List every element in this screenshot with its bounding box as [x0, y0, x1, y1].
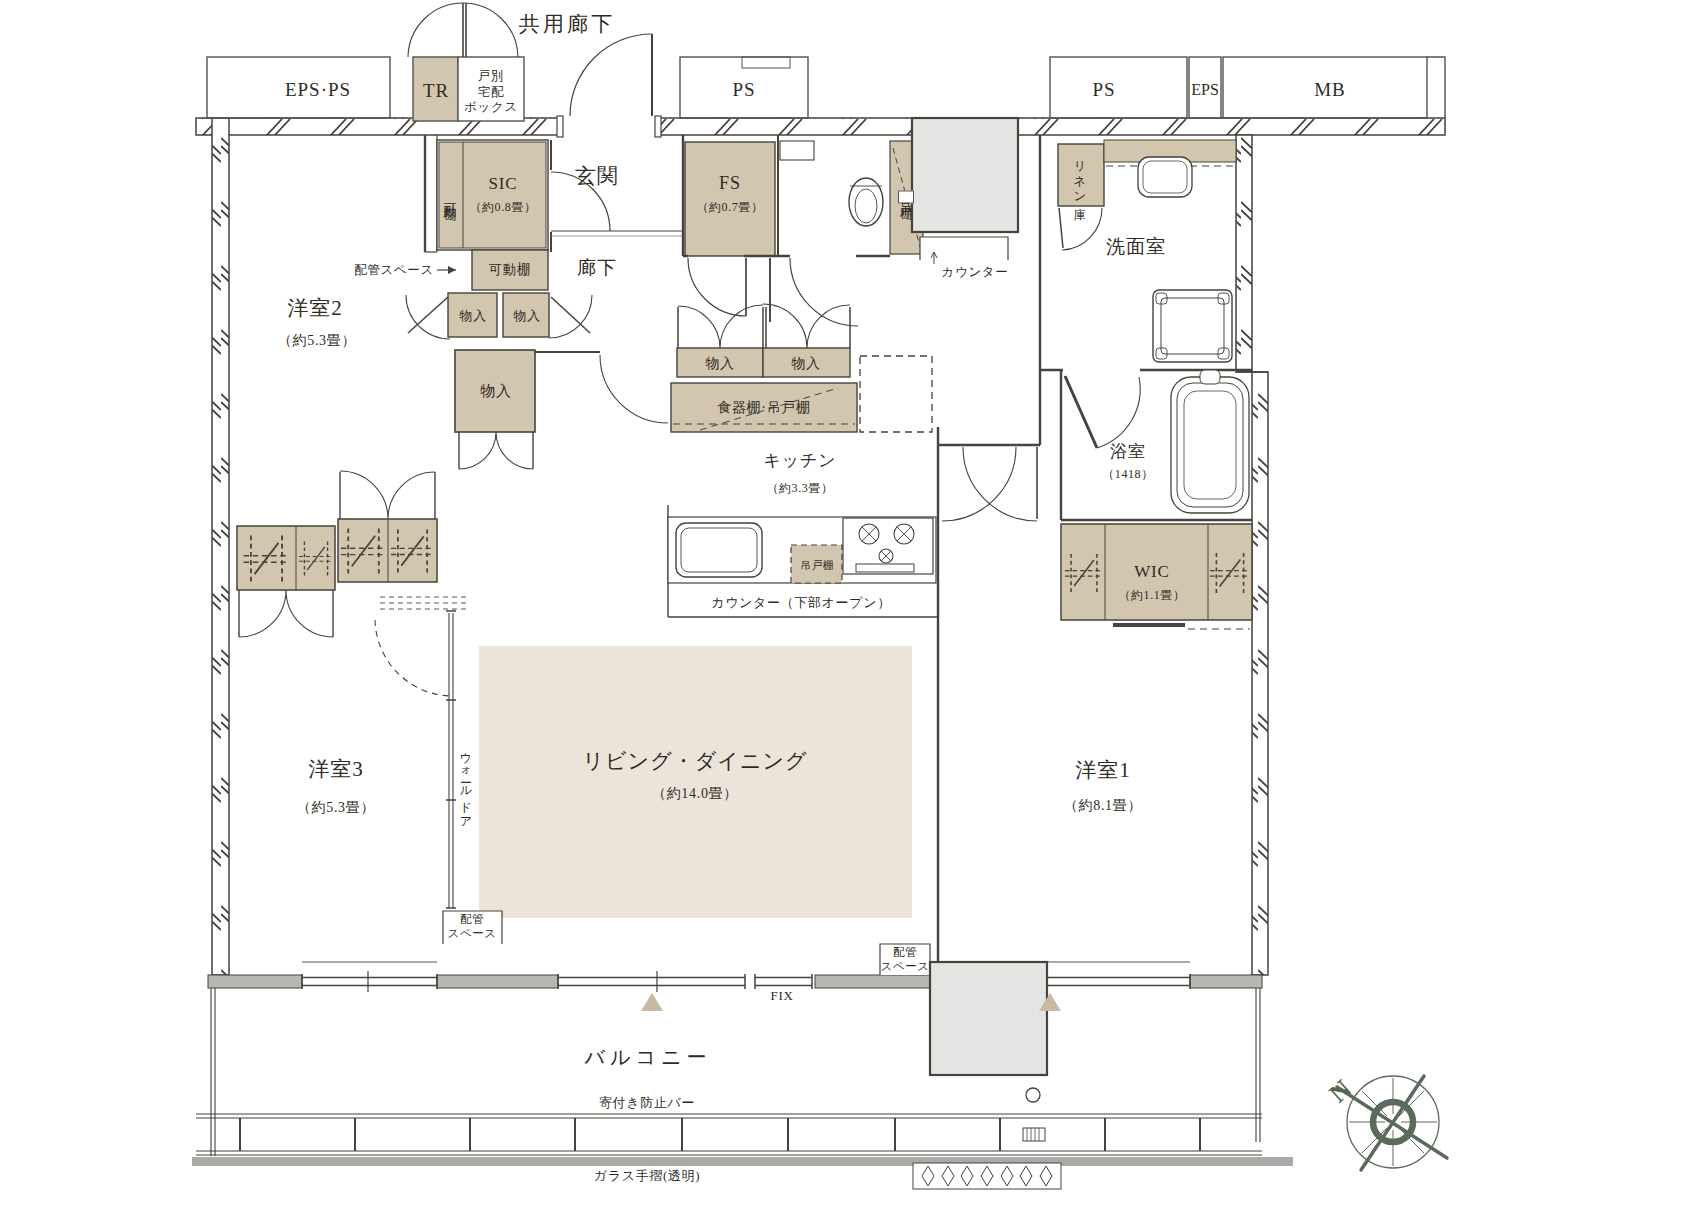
anti-loitering-bar-label: 寄付き防止バー [599, 1095, 695, 1112]
bedroom2-size-label: （約5.3畳） [278, 332, 356, 350]
balcony-railing [192, 988, 1293, 1189]
ps-right-label: PS [1092, 78, 1115, 103]
bedroom3-label: 洋室3 [308, 756, 364, 783]
cupboard-label: 食器棚·吊戸棚 [717, 399, 811, 417]
service-shaft-boxes [207, 57, 1445, 121]
eps-label: EPS [1191, 80, 1219, 101]
wall-door-label: ウォールドア [460, 745, 472, 824]
wic-size-label: （約1.1畳） [1118, 588, 1185, 604]
monoire-hall-a-label: 物入 [705, 355, 734, 373]
eps-ps-label: EPS·PS [285, 78, 351, 103]
living-dining-label: リビング・ダイニング [583, 748, 808, 775]
hallway-label: 廊下 [577, 256, 617, 281]
shafts-and-counter [912, 118, 1018, 264]
living-dining-size-label: （約14.0畳） [652, 785, 738, 803]
pipe-space-left-label: 配管 スペース [447, 913, 496, 941]
bath-label: 浴室 [1110, 441, 1146, 463]
glass-handrail-label: ガラス手摺(透明) [594, 1168, 700, 1185]
south-wall-windows [208, 911, 1262, 1102]
balcony-label: バルコニー [585, 1044, 712, 1070]
monoire-small-b-label: 物入 [513, 308, 540, 325]
bedroom3-closets [237, 471, 470, 908]
fix-window-label: FIX [771, 988, 794, 1005]
hanging-shelf-wc-label: 吊戸棚 [898, 190, 914, 203]
bedroom1-size-label: （約8.1畳） [1064, 797, 1142, 815]
living-dining-floor [479, 646, 912, 918]
sic-size-label: （約0.8畳） [469, 200, 536, 216]
bedroom2-label: 洋室2 [287, 295, 343, 322]
entry-area [425, 135, 923, 326]
bedroom1-label: 洋室1 [1075, 757, 1131, 784]
washroom-label: 洗面室 [1106, 235, 1166, 260]
movable-shelf-sic-label: 可動棚 [444, 193, 457, 198]
delivery-box-label: 戸別 宅配 ボックス [464, 69, 518, 116]
bedroom3-size-label: （約5.3畳） [297, 799, 375, 817]
monoire-hall-b-label: 物入 [791, 355, 820, 373]
kitchen-size-label: （約3.3畳） [766, 481, 833, 497]
floor-plan-page: 共用廊下 EPS·PS TR 戸別 宅配 ボックス PS PS EPS MB 可… [0, 0, 1686, 1219]
fs-size-label: （約0.7畳） [696, 200, 763, 216]
linen-closet-label: リネン庫 [1074, 152, 1086, 200]
monoire-small-a-label: 物入 [459, 308, 486, 325]
pipe-space-arrow-label: 配管スペース [354, 262, 434, 278]
monoire-large-label: 物入 [480, 382, 512, 402]
counter-note-label: カウンター [942, 264, 1009, 280]
kitchen-label: キッチン [764, 450, 837, 472]
hanging-shelf-kitchen-label: 吊戸棚 [801, 558, 834, 572]
counter-open-label: カウンター（下部オープン） [711, 595, 891, 612]
sanitary-area [1040, 135, 1252, 629]
fs-label: FS [719, 172, 741, 195]
ps-center-label: PS [732, 78, 755, 103]
mb-label: MB [1314, 78, 1345, 103]
movable-shelf-label: 可動棚 [489, 261, 532, 279]
trunk-room-label: TR [423, 79, 449, 104]
pipe-space-right-label: 配管 スペース [880, 946, 929, 974]
sic-label: SIC [488, 173, 517, 195]
genkan-label: 玄関 [575, 163, 619, 190]
common-corridor-label: 共用廊下 [519, 11, 616, 38]
bath-size-label: （1418） [1102, 467, 1154, 483]
wic-label: WIC [1134, 561, 1170, 583]
annotation-arrows [437, 266, 456, 274]
